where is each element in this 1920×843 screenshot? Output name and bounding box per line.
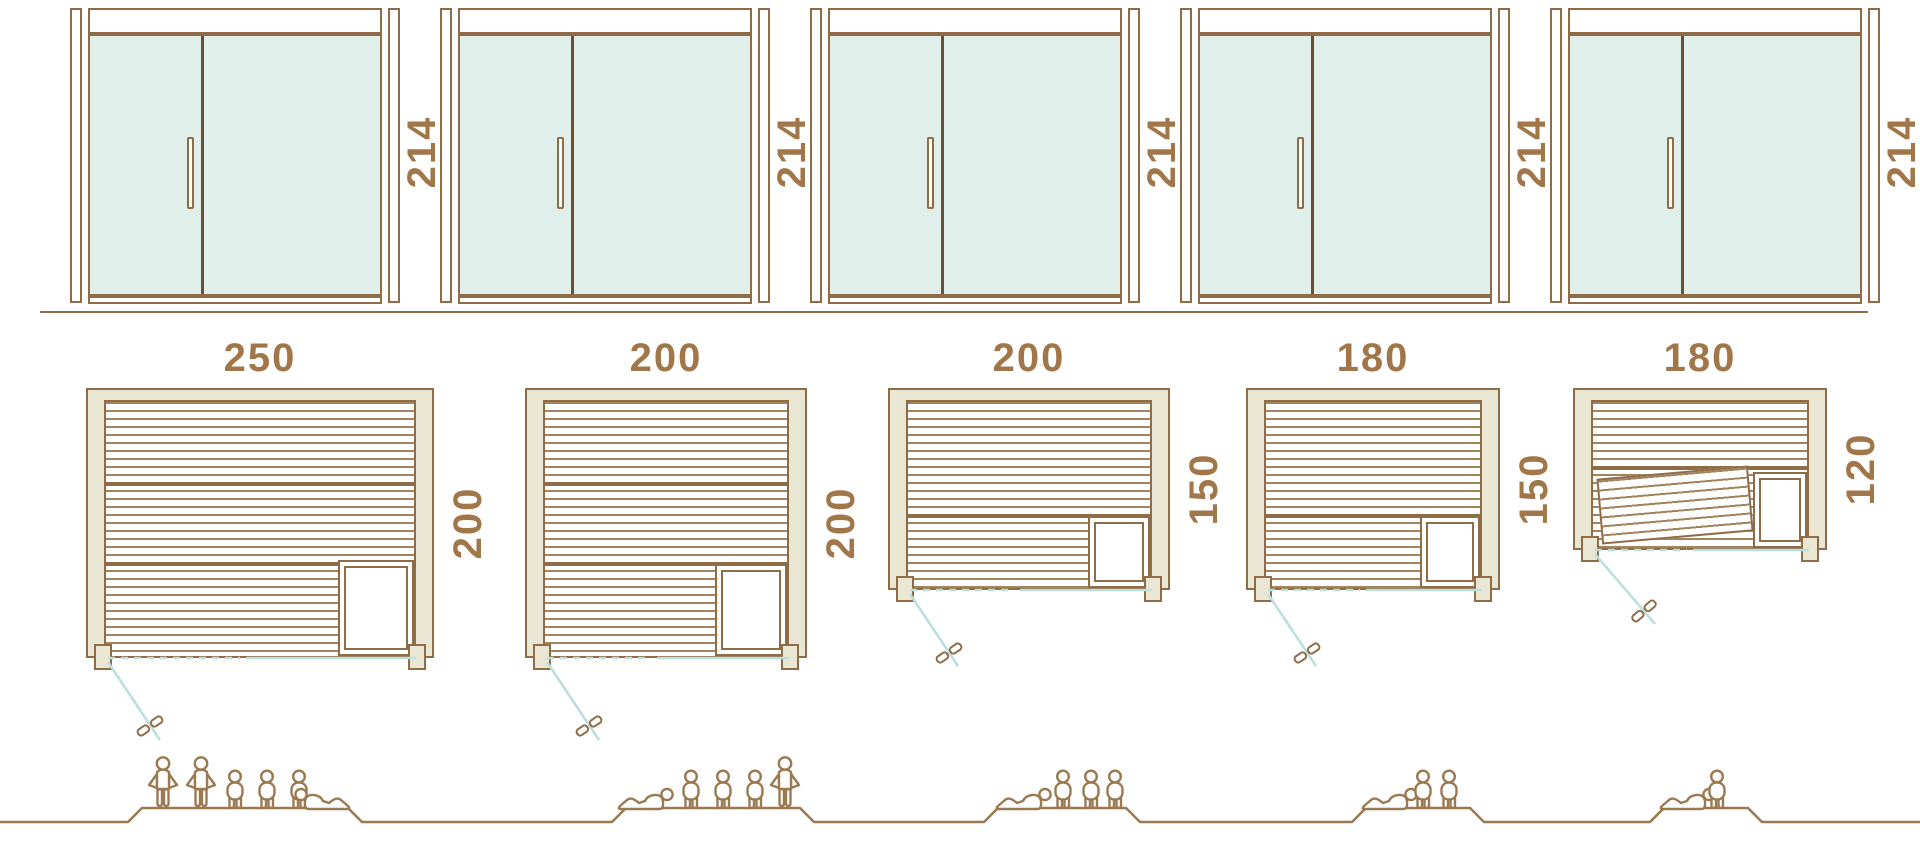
plan-interior (906, 400, 1152, 588)
floor-plan-4: 180 150 (1246, 388, 1500, 590)
bench-edge-line (106, 482, 414, 486)
plan-width-label: 180 (1575, 338, 1825, 378)
person-lying-icon (997, 789, 1051, 809)
door-glass (1198, 34, 1492, 296)
plan-interior (104, 400, 416, 656)
door-header (828, 8, 1122, 34)
door-glass (88, 34, 382, 296)
plan-interior (543, 400, 789, 656)
person-sitting-icon (1710, 771, 1725, 808)
plan-depth-label: 120 (1841, 433, 1881, 506)
bench-edge-line (545, 482, 787, 486)
person-standing-icon (771, 757, 799, 806)
door-post (1498, 8, 1510, 303)
angled-bench (1596, 466, 1753, 545)
heater-grille (721, 570, 781, 650)
door-unit (828, 8, 1122, 304)
door-header (458, 8, 752, 34)
door-leaf-divider (571, 36, 574, 294)
floor-plan-3: 200 150 (888, 388, 1170, 590)
sauna-size-diagram: 214 214 214 214 214 250 200 2 (0, 0, 1920, 843)
heater-icon (715, 564, 787, 656)
person-lying-icon (1363, 789, 1417, 809)
heater-grille (1426, 522, 1474, 582)
door-glass (458, 34, 752, 296)
plan-width-label: 250 (88, 338, 432, 378)
door-elevation-3 (810, 8, 1140, 304)
door-sill (1568, 296, 1862, 304)
door-unit (1198, 8, 1492, 304)
door-height-label-3: 214 (1142, 116, 1182, 189)
person-standing-icon (149, 757, 177, 806)
door-handle-icon (1667, 137, 1674, 209)
capacity-row (0, 710, 1920, 840)
heater-grille (344, 566, 408, 650)
person-sitting-icon (1056, 771, 1071, 808)
door-glass (1568, 34, 1862, 296)
person-sitting-icon (1442, 771, 1457, 808)
door-height-label-5: 214 (1882, 116, 1920, 189)
door-handle-icon (927, 137, 934, 209)
person-sitting-icon (684, 771, 699, 808)
person-lying-icon (1661, 789, 1715, 809)
person-lying-icon (619, 789, 673, 809)
floor-plan-5: 180 120 (1573, 388, 1827, 550)
door-sill (88, 296, 382, 304)
door-height-label-2: 214 (772, 116, 812, 189)
door-elevation-2 (440, 8, 770, 304)
person-sitting-icon (228, 771, 243, 808)
plan-depth-label: 200 (821, 487, 861, 560)
door-height-label-1: 214 (402, 116, 442, 189)
plan-width-label: 200 (527, 338, 805, 378)
door-leaf-divider (1681, 36, 1684, 294)
plan-depth-label: 200 (448, 487, 488, 560)
door-swing-icon (1585, 546, 1695, 646)
person-sitting-icon (1416, 771, 1431, 808)
plan-depth-label: 150 (1514, 453, 1554, 526)
door-header (1198, 8, 1492, 34)
ground-line-doors (40, 311, 1868, 313)
door-post (388, 8, 400, 303)
door-leaf-divider (1311, 36, 1314, 294)
person-sitting-icon (260, 771, 275, 808)
door-height-label-4: 214 (1512, 116, 1552, 189)
plan-interior (1264, 400, 1482, 588)
door-glass (828, 34, 1122, 296)
door-unit (1568, 8, 1862, 304)
door-handle-icon (557, 137, 564, 209)
door-header (88, 8, 382, 34)
person-standing-icon (187, 757, 215, 806)
door-handle-icon (1297, 137, 1304, 209)
door-leaf-divider (941, 36, 944, 294)
floor-plan-2: 200 200 (525, 388, 807, 658)
person-sitting-icon (716, 771, 731, 808)
door-post (1128, 8, 1140, 303)
person-sitting-icon (748, 771, 763, 808)
door-sill (1198, 296, 1492, 304)
door-unit (458, 8, 752, 304)
door-unit (88, 8, 382, 304)
door-post (70, 8, 82, 303)
door-elevation-5 (1550, 8, 1880, 304)
door-header (1568, 8, 1862, 34)
ground-line-people (0, 808, 1920, 822)
door-swing-icon (1258, 586, 1358, 686)
plan-width-label: 180 (1248, 338, 1498, 378)
heater-icon (338, 560, 414, 656)
plan-width-label: 200 (890, 338, 1168, 378)
person-sitting-icon (1108, 771, 1123, 808)
plan-interior (1591, 400, 1809, 548)
floor-plan-1: 250 200 (86, 388, 434, 658)
door-elevation-1 (70, 8, 400, 304)
plan-depth-label: 150 (1184, 453, 1224, 526)
door-post (758, 8, 770, 303)
door-sill (828, 296, 1122, 304)
heater-icon (1420, 516, 1480, 588)
door-swing-icon (900, 586, 1000, 686)
door-handle-icon (187, 137, 194, 209)
heater-grille (1094, 522, 1144, 582)
heater-icon (1753, 472, 1807, 548)
heater-icon (1088, 516, 1150, 588)
person-sitting-icon (1084, 771, 1099, 808)
door-sill (458, 296, 752, 304)
door-leaf-divider (201, 36, 204, 294)
door-post (1868, 8, 1880, 303)
heater-grille (1759, 478, 1801, 542)
door-elevation-4 (1180, 8, 1510, 304)
